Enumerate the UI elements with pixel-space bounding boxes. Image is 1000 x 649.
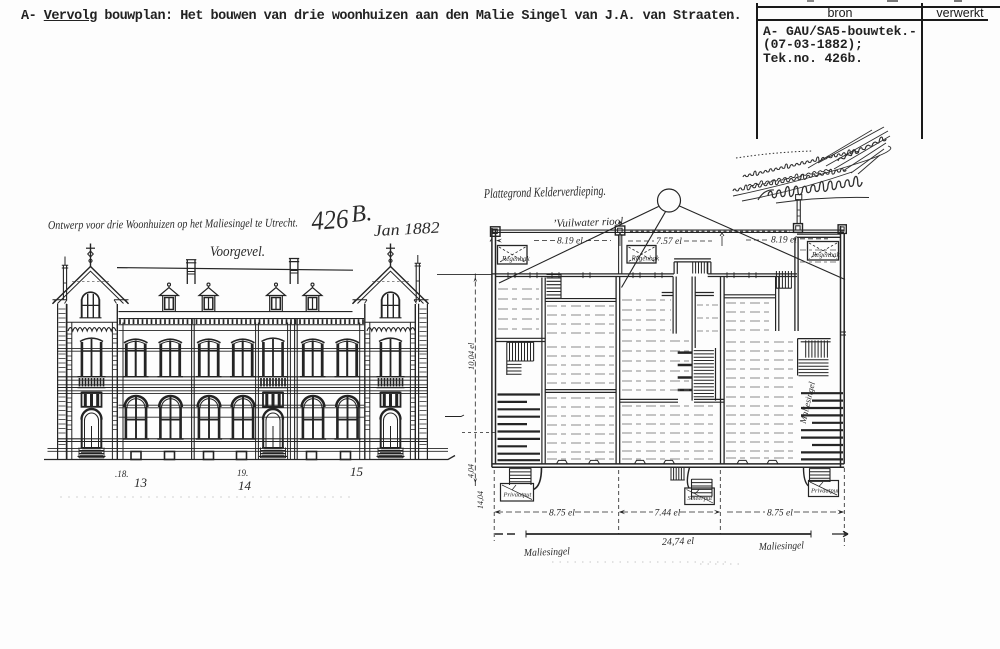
svg-text:8.19 el: 8.19 el	[771, 236, 797, 246]
svg-text:Plattegrond Kelderverdieping.: Plattegrond Kelderverdieping.	[483, 183, 606, 201]
svg-text:Maliesingel: Maliesingel	[797, 380, 817, 425]
svg-text:Jan 1882: Jan 1882	[373, 220, 440, 240]
svg-text:8.75 el: 8.75 el	[549, 509, 575, 519]
svg-text:14: 14	[238, 478, 252, 493]
svg-text:7.57 el: 7.57 el	[656, 237, 682, 247]
svg-text:Regenbak: Regenbak	[811, 251, 840, 259]
svg-text:B.: B.	[350, 200, 373, 228]
svg-text:24,74 el: 24,74 el	[662, 536, 695, 548]
svg-text:Voorgevel.: Voorgevel.	[210, 244, 265, 260]
svg-text:Smeerput: Smeerput	[688, 495, 713, 502]
svg-text:Maliesingel: Maliesingel	[758, 540, 804, 553]
svg-text:4,04: 4,04	[467, 464, 476, 478]
svg-text:Privaatput: Privaatput	[503, 492, 532, 499]
svg-text:8.75 el: 8.75 el	[767, 509, 793, 519]
svg-text:Ontwerp voor drie Woonhuizen o: Ontwerp voor drie Woonhuizen op het Mali…	[48, 215, 298, 232]
svg-text:Regenbak: Regenbak	[631, 255, 660, 263]
svg-text:13: 13	[134, 475, 148, 490]
svg-text:7.44 el: 7.44 el	[655, 509, 681, 519]
svg-text:426: 426	[310, 203, 349, 236]
svg-text:10,04 el: 10,04 el	[466, 342, 476, 370]
svg-text:’Vuilwater riool: ’Vuilwater riool	[553, 216, 624, 230]
svg-text:.18.: .18.	[115, 469, 129, 479]
svg-text:15: 15	[350, 464, 364, 479]
svg-text:19.: 19.	[237, 468, 248, 478]
svg-text:Regenbak: Regenbak	[501, 255, 530, 263]
svg-text:14,04: 14,04	[476, 491, 485, 509]
svg-text:Privaatput: Privaatput	[810, 488, 839, 495]
svg-text:Maliesingel: Maliesingel	[523, 546, 570, 559]
svg-text:8.19 el: 8.19 el	[557, 237, 583, 247]
